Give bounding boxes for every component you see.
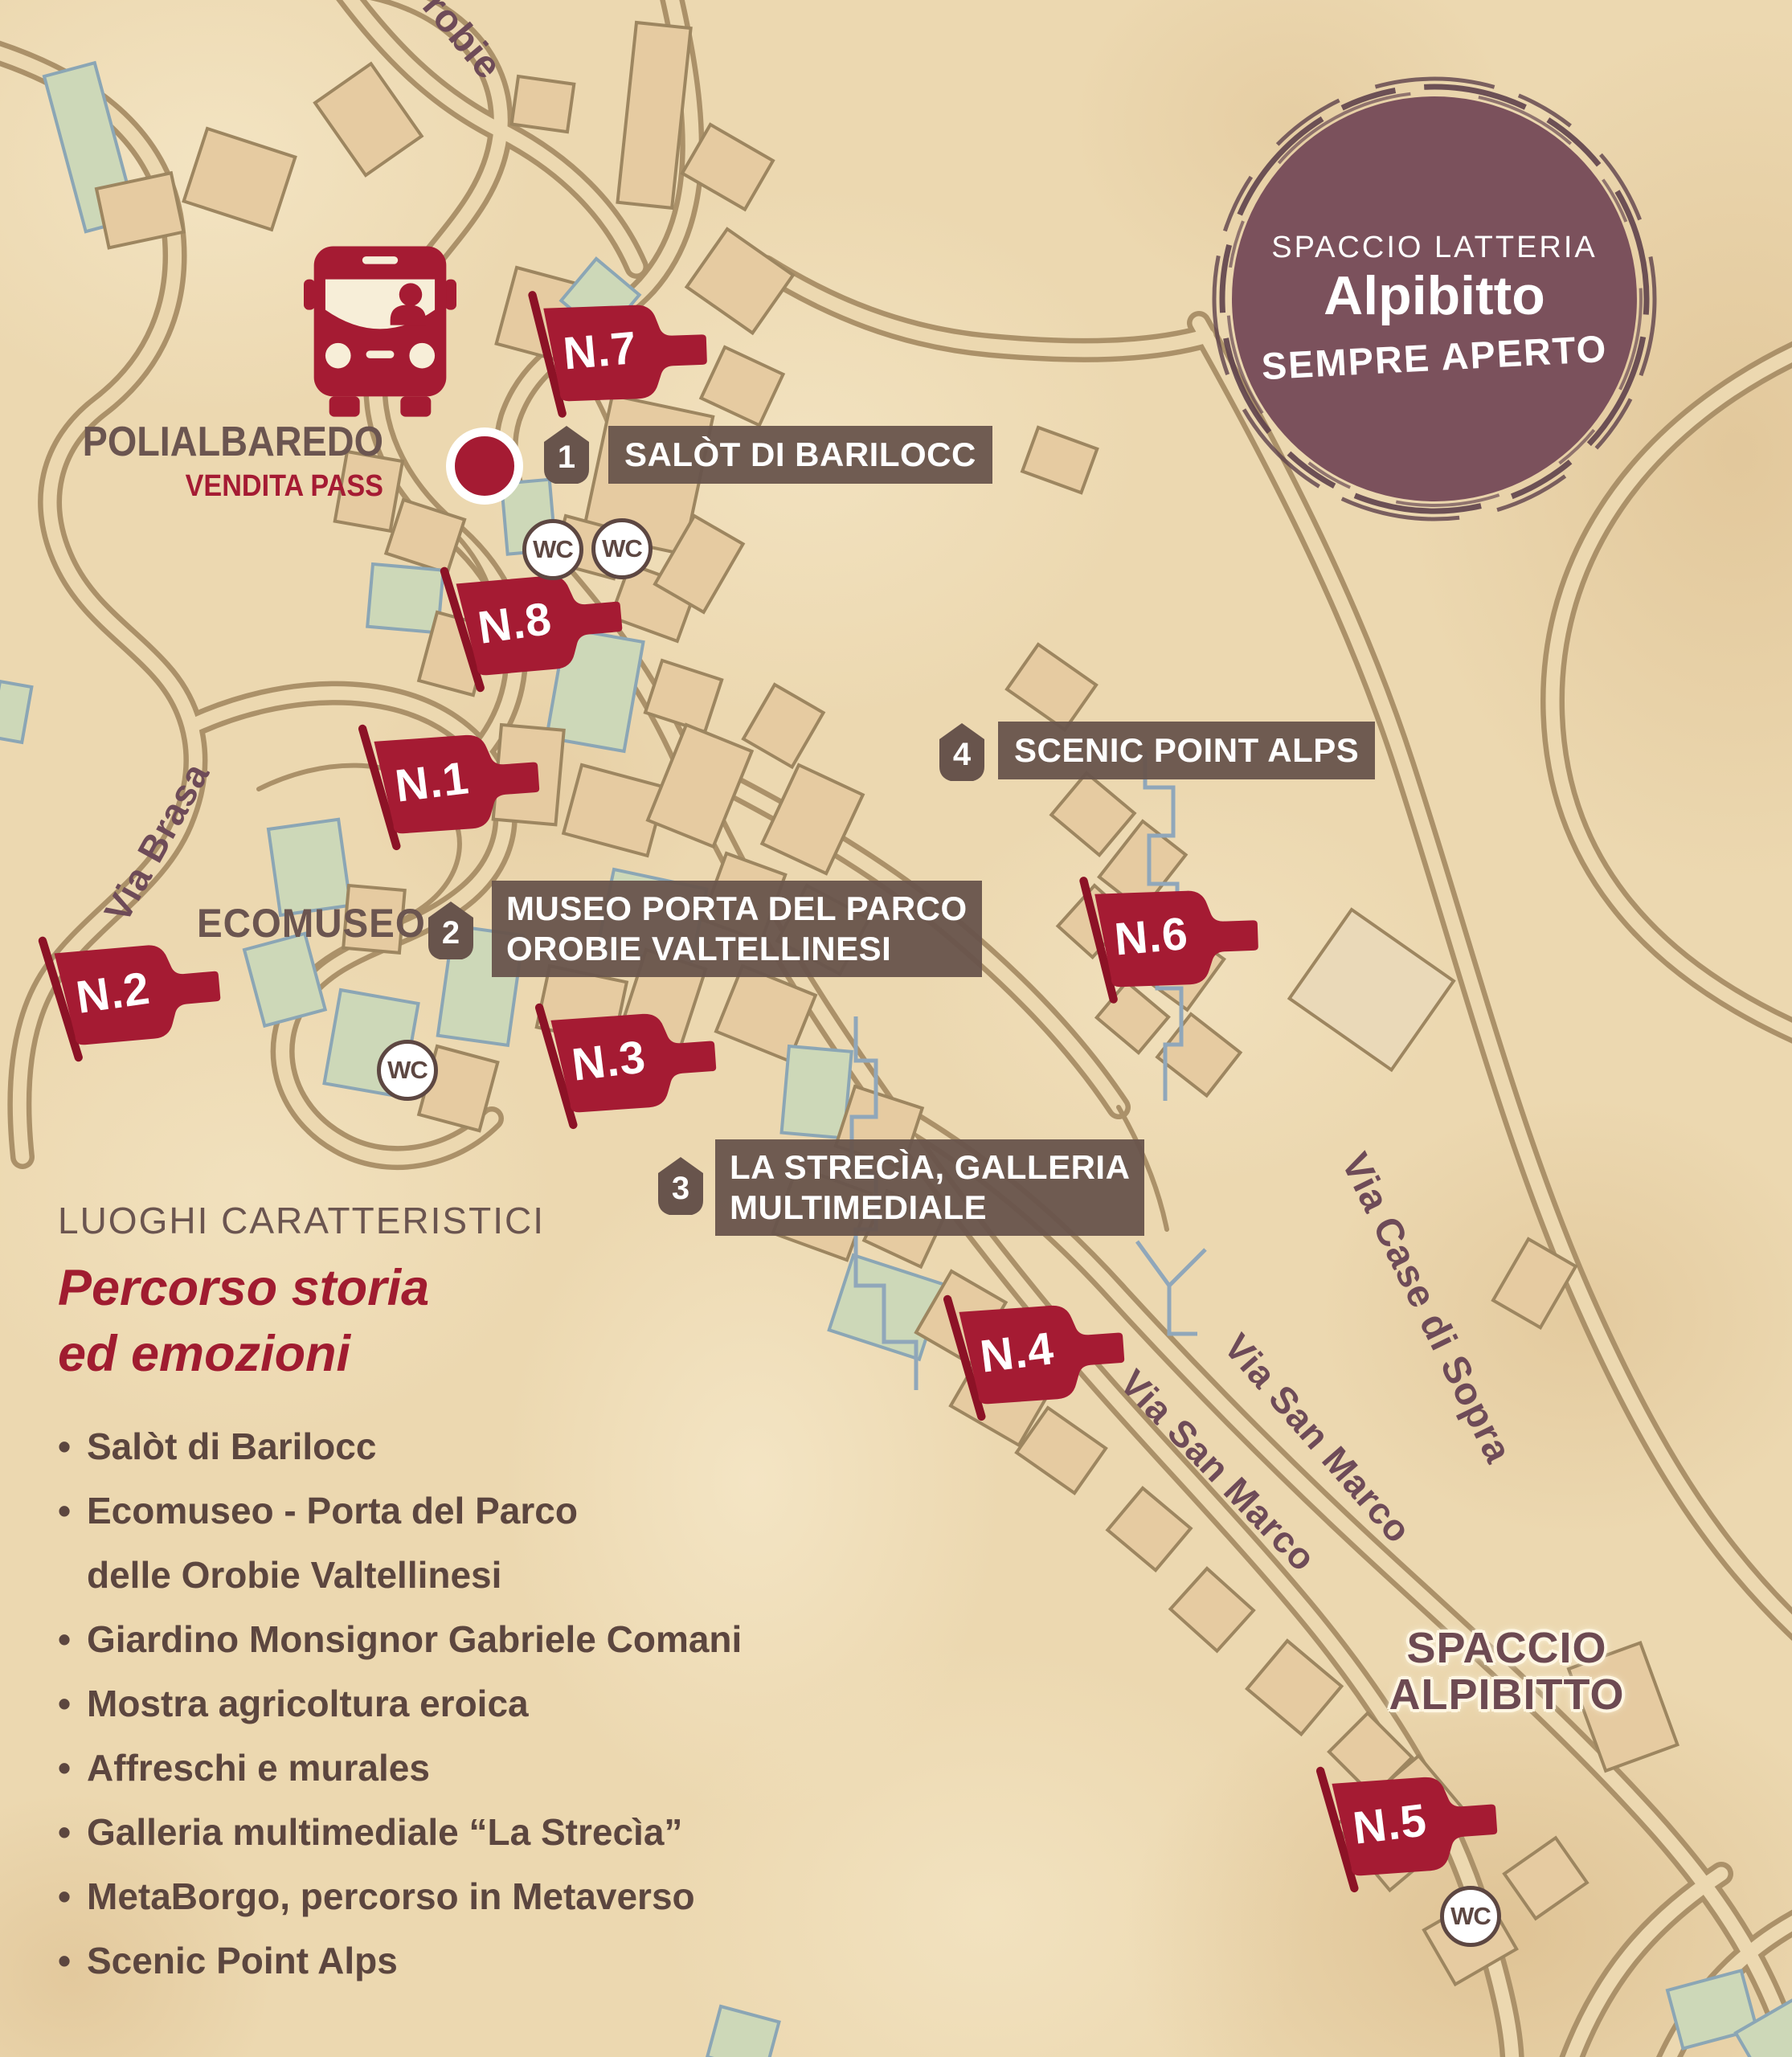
marker-2-text-line1: MUSEO PORTA DEL PARCO	[506, 889, 968, 929]
legend-item: •Giardino Monsignor Gabriele Comani	[58, 1607, 894, 1671]
legend-item: •Galleria multimediale “La Strecìa”	[58, 1800, 894, 1864]
marker-2-label: MUSEO PORTA DEL PARCO OROBIE VALTELLINES…	[492, 881, 982, 977]
marker-4-label: SCENIC POINT ALPS	[998, 722, 1375, 779]
legend-item-text: Ecomuseo - Porta del Parco	[87, 1489, 578, 1532]
legend-item-text: Galleria multimediale “La Strecìa”	[87, 1810, 682, 1854]
legend-item: •Affreschi e murales	[58, 1736, 894, 1800]
legend-bullet: •	[58, 1682, 87, 1725]
flag-n8: N.8	[432, 551, 631, 696]
marker-2-number: 2	[427, 911, 475, 955]
legend-bullet: •	[58, 1425, 87, 1468]
legend-bullet: •	[58, 1810, 87, 1854]
legend-title: LUOGHI CARATTERISTICI	[58, 1199, 894, 1242]
spaccio-line1: SPACCIO	[1358, 1625, 1655, 1671]
legend-item-text: Mostra agricoltura eroica	[87, 1682, 529, 1725]
flag-n4: N.4	[935, 1282, 1133, 1424]
marker-1-text: SALÒT DI BARILOCC	[624, 436, 976, 473]
bus-stop-subtitle: VENDITA PASS	[80, 469, 383, 504]
legend-item: •Ecomuseo - Porta del Parco	[58, 1478, 894, 1543]
legend-subtitle-line2: ed emozioni	[58, 1321, 894, 1387]
marker-1: 1	[542, 424, 591, 485]
legend-bullet: •	[58, 1939, 87, 1982]
spaccio-line2: ALPIBITTO	[1358, 1671, 1655, 1718]
flag-n8-label: N.8	[451, 572, 579, 675]
wc-icon: WC	[377, 1040, 438, 1101]
flag-n7-label: N.7	[538, 303, 662, 400]
legend-bullet: •	[58, 1746, 87, 1789]
badge-line-spaccio-latteria: SPACCIO LATTERIA	[1193, 231, 1675, 265]
spaccio-alpibitto-label: SPACCIO ALPIBITTO	[1358, 1625, 1655, 1718]
legend-item: •Salòt di Barilocc	[58, 1414, 894, 1478]
bus-stop-label: POLIALBAREDO VENDITA PASS	[46, 418, 383, 504]
legend-item: •Mostra agricoltura eroica	[58, 1671, 894, 1736]
legend-list: •Salòt di Barilocc•Ecomuseo - Porta del …	[58, 1414, 894, 1993]
legend-subtitle-line1: Percorso storia	[58, 1255, 894, 1321]
bus-stop-dot	[446, 427, 523, 505]
bus-stop-name: POLIALBAREDO	[80, 418, 383, 466]
marker-3-text-line1: LA STRECÌA, GALLERIA	[730, 1147, 1130, 1188]
legend-bullet: •	[58, 1875, 87, 1918]
legend-item-text: MetaBorgo, percorso in Metaverso	[87, 1875, 695, 1918]
wc-icon: WC	[591, 518, 653, 579]
wc-icon: WC	[1440, 1886, 1501, 1947]
legend-item-text: Scenic Point Alps	[87, 1939, 398, 1982]
wc-icon: WC	[522, 519, 583, 580]
flag-n2-label: N.2	[49, 942, 177, 1045]
legend-bullet: •	[58, 1489, 87, 1532]
marker-4-number: 4	[938, 733, 986, 776]
flag-n4-label: N.4	[953, 1302, 1080, 1404]
legend-bullet: •	[58, 1617, 87, 1661]
flag-n3: N.3	[527, 991, 725, 1132]
ecomuseo-label: ECOMUSEO	[197, 900, 426, 947]
tourist-map: robie SPACCIO LATTERIA Alpibitto SEMPRE …	[0, 0, 1792, 2057]
legend-item-text: Salòt di Barilocc	[87, 1425, 376, 1468]
flag-n3-label: N.3	[545, 1011, 672, 1112]
marker-4-text: SCENIC POINT ALPS	[1014, 731, 1359, 769]
marker-4: 4	[938, 722, 986, 783]
flag-n1: N.1	[350, 712, 548, 853]
legend: LUOGHI CARATTERISTICI Percorso storia ed…	[58, 1199, 894, 1993]
flag-n6-label: N.6	[1089, 889, 1213, 986]
legend-item: •MetaBorgo, percorso in Metaverso	[58, 1864, 894, 1928]
spaccio-latteria-badge: SPACCIO LATTERIA Alpibitto SEMPRE APERTO	[1193, 60, 1675, 542]
marker-1-number: 1	[542, 436, 591, 479]
marker-2-text-line2: OROBIE VALTELLINESI	[506, 929, 968, 969]
flag-n7: N.7	[520, 284, 713, 419]
flag-n1-label: N.1	[368, 732, 495, 833]
marker-1-label: SALÒT DI BARILOCC	[608, 426, 992, 484]
badge-line-alpibitto: Alpibitto	[1193, 264, 1675, 327]
legend-item: •Scenic Point Alps	[58, 1928, 894, 1993]
legend-item-text: Giardino Monsignor Gabriele Comani	[87, 1617, 742, 1661]
marker-2: 2	[427, 900, 475, 961]
legend-item: delle Orobie Valtellinesi	[58, 1543, 894, 1607]
flag-n5-label: N.5	[1326, 1774, 1453, 1875]
flag-n6: N.6	[1071, 870, 1264, 1005]
bus-icon	[304, 241, 456, 419]
legend-item-text: delle Orobie Valtellinesi	[87, 1553, 501, 1597]
legend-item-text: Affreschi e murales	[87, 1746, 430, 1789]
flag-n5: N.5	[1308, 1754, 1506, 1895]
